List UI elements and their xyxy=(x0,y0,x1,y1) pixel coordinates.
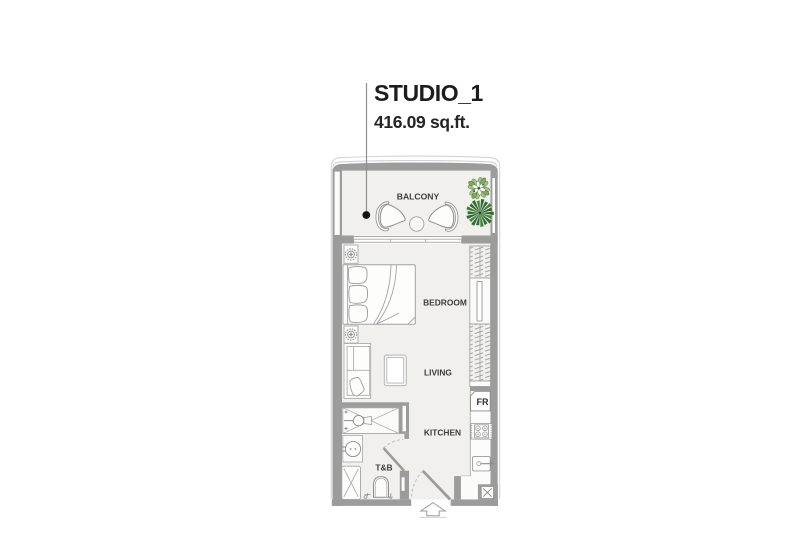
svg-text:BALCONY: BALCONY xyxy=(397,192,440,202)
svg-text:T&B: T&B xyxy=(375,462,392,472)
svg-text:STUDIO_1: STUDIO_1 xyxy=(374,80,484,106)
svg-text:BEDROOM: BEDROOM xyxy=(423,298,467,308)
svg-text:KITCHEN: KITCHEN xyxy=(424,427,461,437)
svg-text:FR: FR xyxy=(477,397,489,407)
svg-text:LIVING: LIVING xyxy=(424,368,452,378)
svg-text:416.09 sq.ft.: 416.09 sq.ft. xyxy=(374,112,470,132)
